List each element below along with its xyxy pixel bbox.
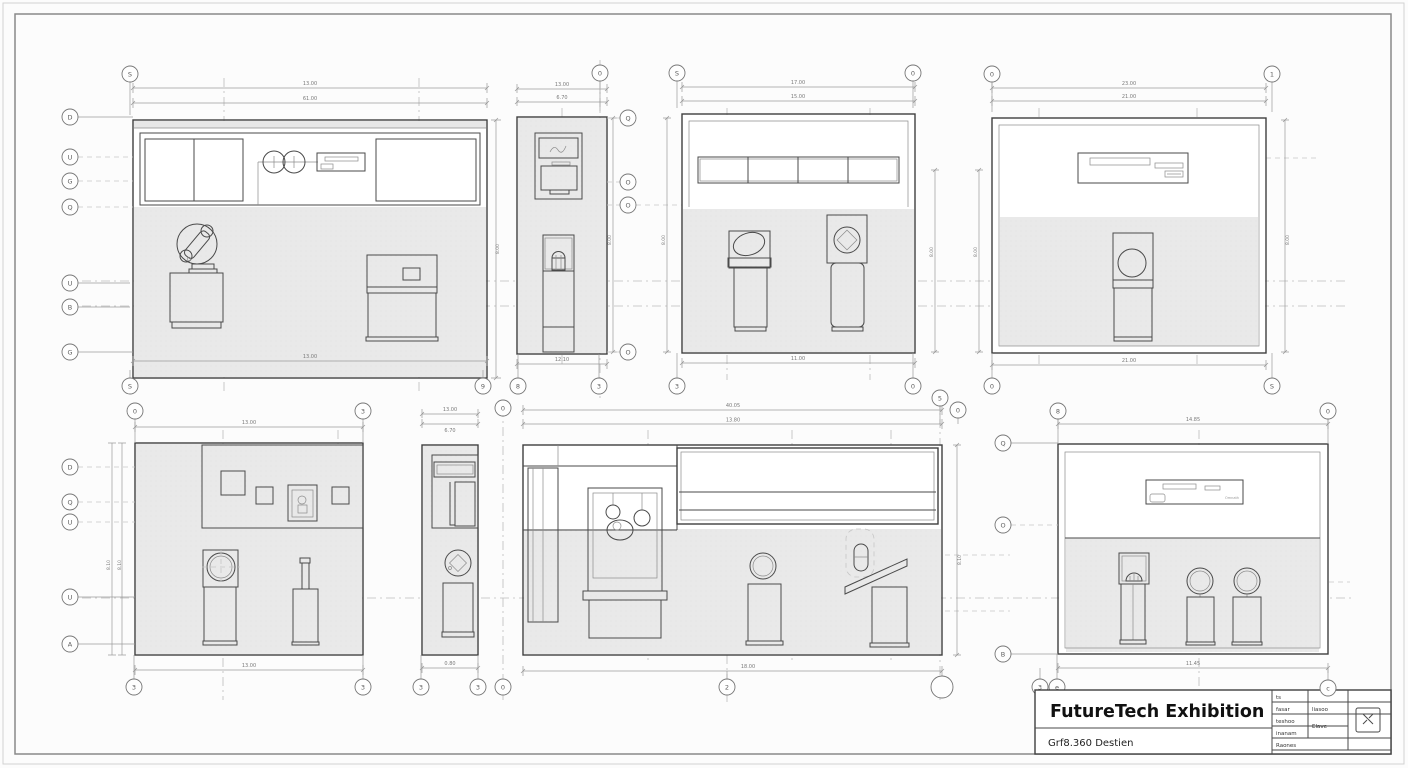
svg-text:c: c	[1326, 685, 1330, 693]
grid-bubble: 5	[932, 390, 948, 406]
svg-text:U: U	[68, 519, 73, 527]
elevation-b: 13.00 6.70 12.10 8.00 8.00	[515, 82, 671, 369]
sign-text: Omnath	[1225, 496, 1239, 500]
svg-text:U: U	[68, 594, 73, 602]
grid-bubble: D	[62, 459, 78, 475]
cad-drawing: 13.00 61.00 13.00 8.00 13.00 6.70 12.10 …	[0, 0, 1408, 768]
svg-text:Q: Q	[1000, 440, 1005, 448]
dimension-label: 13.00	[303, 81, 317, 87]
dimension-label: 23.00	[1122, 81, 1136, 87]
grid-bubble: O	[620, 174, 636, 190]
grid-bubble: Q	[62, 199, 78, 215]
dimension-label: 21.00	[1122, 94, 1136, 100]
fascia-strip	[134, 121, 486, 128]
dimension-label: 11.00	[791, 356, 805, 362]
grid-bubble: O	[620, 344, 636, 360]
grid-bubble: 0	[495, 400, 511, 416]
table-cell: ts	[1276, 695, 1281, 701]
grid-bubble: 3	[413, 679, 429, 695]
grid-bubble: 8	[510, 378, 526, 394]
elevation-h: Omnath 14.85 11.45	[1056, 417, 1330, 673]
grid-bubble: 3	[126, 679, 142, 695]
grid-bubble: S	[122, 378, 138, 394]
svg-text:0: 0	[598, 70, 602, 78]
grid-bubble: S	[122, 66, 138, 82]
svg-text:0: 0	[1326, 408, 1330, 416]
grid-bubble: O	[995, 517, 1011, 533]
grid-bubble: G	[62, 344, 78, 360]
table-cell: fasar	[1276, 707, 1291, 713]
dimension-label: 8.00	[661, 235, 667, 245]
dimension-label: 61.00	[303, 96, 317, 102]
svg-text:0: 0	[956, 407, 960, 415]
grid-bubble: 3	[669, 378, 685, 394]
project-title: FutureTech Exhibition	[1050, 702, 1264, 722]
grid-bubble: S	[669, 65, 685, 81]
wall-lower-clad	[134, 207, 486, 377]
grid-bubble: B	[62, 299, 78, 315]
svg-text:3: 3	[132, 684, 136, 692]
grid-bubble: 3	[591, 378, 607, 394]
svg-text:D: D	[67, 464, 72, 472]
svg-text:B: B	[68, 304, 72, 312]
grid-bubble: 0	[495, 679, 511, 695]
svg-text:Q: Q	[67, 204, 72, 212]
wall-lower-clad	[683, 209, 914, 352]
svg-text:O: O	[1000, 522, 1005, 530]
dimension-label: 17.00	[791, 80, 805, 86]
elevation-a: 13.00 61.00 13.00 8.00	[131, 81, 501, 380]
dimension-line	[521, 666, 944, 676]
grid-bubble: 0	[905, 65, 921, 81]
project-subtitle: Grf8.360 Destien	[1048, 738, 1133, 749]
grid-bubble: U	[62, 275, 78, 291]
grid-bubble: 0	[127, 403, 143, 419]
grid-bubble: 1	[1264, 66, 1280, 82]
svg-text:5: 5	[938, 395, 942, 403]
dimension-label: 6.70	[556, 95, 567, 101]
grid-bubble: B	[995, 646, 1011, 662]
dimension-label: 8.00	[929, 247, 935, 257]
elevation-d: 23.00 21.00 21.00 8.00 8.00 8.00	[929, 81, 1291, 370]
dimension-label: 40.05	[726, 403, 740, 409]
elevation-g: 40.05 13.80 18.00 8.10	[521, 403, 963, 676]
title-block: FutureTech Exhibition Grf8.360 Destien t…	[1035, 680, 1391, 754]
grid-bubble: G	[62, 173, 78, 189]
dimension-label: 8.10	[957, 555, 963, 565]
svg-text:3: 3	[361, 408, 365, 416]
dimension-line	[931, 168, 939, 354]
svg-text:G: G	[67, 349, 72, 357]
dimension-label: 0.80	[444, 661, 455, 667]
svg-text:A: A	[68, 641, 73, 649]
svg-text:3: 3	[361, 684, 365, 692]
grid-bubble: 9	[475, 378, 491, 394]
svg-text:0: 0	[911, 70, 915, 78]
svg-text:S: S	[128, 383, 132, 391]
dimension-line	[953, 443, 961, 657]
grid-bubble: 0	[592, 65, 608, 81]
table-cell: Elave	[1312, 724, 1328, 730]
dimension-label: 13.00	[443, 407, 457, 413]
elevation-c: 17.00 15.00 11.00	[680, 80, 917, 368]
svg-text:D: D	[67, 114, 72, 122]
dimension-label: 13.00	[242, 420, 256, 426]
grid-bubble: O	[620, 197, 636, 213]
grid-bubble: S	[1264, 378, 1280, 394]
svg-text:1: 1	[1270, 71, 1274, 79]
grid-bubble: 0	[905, 378, 921, 394]
dimension-label: 13.80	[726, 418, 740, 424]
dimension-label: 14.85	[1186, 417, 1200, 423]
grid-bubble: 3	[355, 403, 371, 419]
dimension-label: 8.00	[495, 244, 501, 254]
grid-bubble	[931, 676, 953, 698]
grid-bubble: D	[62, 109, 78, 125]
svg-text:S: S	[675, 70, 679, 78]
dimension-label: 8.00	[973, 247, 979, 257]
svg-text:O: O	[625, 202, 630, 210]
svg-text:3: 3	[675, 383, 679, 391]
svg-text:0: 0	[911, 383, 915, 391]
grid-bubble: 3	[470, 679, 486, 695]
dimension-label: 13.00	[242, 663, 256, 669]
svg-text:O: O	[625, 349, 630, 357]
grid-bubble: c	[1320, 680, 1336, 696]
svg-text:2: 2	[725, 684, 729, 692]
svg-text:3: 3	[419, 684, 423, 692]
svg-text:3: 3	[476, 684, 480, 692]
svg-text:0: 0	[133, 408, 137, 416]
table-cell: teshoo	[1276, 719, 1295, 725]
grid-bubble: U	[62, 589, 78, 605]
dimension-label: 6.70	[444, 428, 455, 434]
table-cell: Raones	[1276, 743, 1296, 749]
svg-text:O: O	[625, 179, 630, 187]
dimension-line	[108, 443, 116, 655]
wall-lower-clad	[1066, 538, 1319, 652]
svg-text:S: S	[1270, 383, 1274, 391]
dimension-label: 13.00	[555, 82, 569, 88]
elevation-f: 13.00 6.70 0.80	[420, 407, 480, 673]
grid-bubble: 0	[950, 402, 966, 418]
grid-bubble: 2	[719, 679, 735, 695]
dimension-label: 8.00	[1285, 235, 1291, 245]
dimension-line	[975, 168, 983, 354]
svg-text:U: U	[68, 154, 73, 162]
grid-bubble: U	[62, 514, 78, 530]
dimension-label: 12.10	[555, 357, 569, 363]
svg-text:S: S	[128, 71, 132, 79]
dimension-label: 18.00	[741, 664, 755, 670]
dimension-label: 11.45	[1186, 661, 1200, 667]
table-cell: inanam	[1276, 731, 1297, 737]
svg-text:8: 8	[516, 383, 520, 391]
dimension-label: 13.00	[303, 354, 317, 360]
elevation-e: 13.00 13.00 8.10 8.10	[106, 420, 365, 675]
grid-bubble: 3	[355, 679, 371, 695]
grid-bubble: 0	[1320, 403, 1336, 419]
svg-text:0: 0	[990, 383, 994, 391]
svg-text:U: U	[68, 280, 73, 288]
svg-text:3: 3	[597, 383, 601, 391]
grid-bubble: 8	[1050, 403, 1066, 419]
svg-text:Q: Q	[67, 499, 72, 507]
svg-text:8: 8	[1056, 408, 1060, 416]
grid-bubble: Q	[62, 494, 78, 510]
svg-text:9: 9	[481, 383, 485, 391]
svg-text:0: 0	[501, 684, 505, 692]
dimension-label: 8.00	[607, 235, 613, 245]
svg-text:G: G	[67, 178, 72, 186]
grid-bubble: Q	[995, 435, 1011, 451]
grid-bubble: U	[62, 149, 78, 165]
dimension-label: 21.00	[1122, 358, 1136, 364]
wall-lower-clad	[1000, 217, 1258, 346]
dimension-line	[118, 443, 126, 655]
grid-bubble: A	[62, 636, 78, 652]
drawing-sheet: 13.00 61.00 13.00 8.00 13.00 6.70 12.10 …	[0, 0, 1408, 768]
svg-text:0: 0	[990, 71, 994, 79]
grid-bubble: 0	[984, 66, 1000, 82]
table-cell: liasoo	[1312, 707, 1329, 713]
svg-text:0: 0	[501, 405, 505, 413]
dimension-label: 15.00	[791, 94, 805, 100]
svg-text:Q: Q	[625, 115, 630, 123]
grid-bubble: Q	[620, 110, 636, 126]
wall-panel	[136, 444, 362, 654]
svg-text:B: B	[1001, 651, 1005, 659]
grid-bubble: 0	[984, 378, 1000, 394]
dimension-line	[420, 419, 480, 428]
dimension-label: 8.10	[117, 560, 123, 570]
dimension-label: 8.10	[106, 560, 112, 570]
